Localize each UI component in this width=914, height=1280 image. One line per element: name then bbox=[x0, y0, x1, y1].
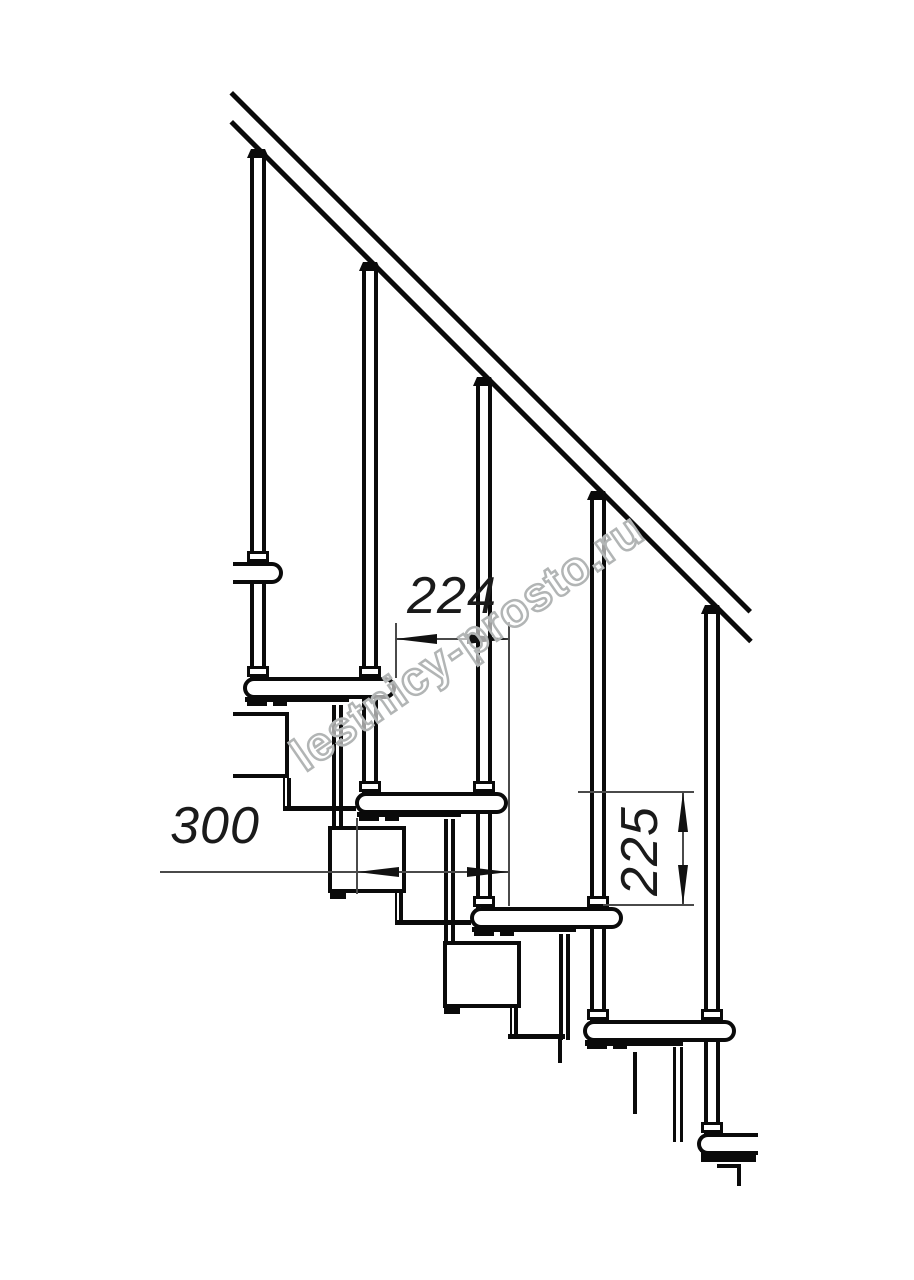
baluster-base-collar bbox=[473, 781, 495, 792]
module-link-line bbox=[395, 920, 471, 925]
tread-4 bbox=[583, 1020, 736, 1042]
module-duct-line bbox=[559, 934, 563, 1040]
module-duct-line bbox=[680, 1047, 683, 1142]
rail-connector-1 bbox=[247, 149, 269, 158]
module-duct-line bbox=[566, 934, 570, 1040]
stringer-module-2 bbox=[328, 826, 406, 893]
module-foot-tab bbox=[330, 893, 346, 899]
dimension-label-step-rise: 225 bbox=[614, 794, 666, 908]
module-link-line bbox=[283, 806, 356, 811]
rail-connector-2 bbox=[359, 262, 381, 271]
baluster-base-collar bbox=[359, 781, 381, 792]
baluster-base-collar bbox=[473, 896, 495, 907]
dimension-line bbox=[160, 871, 510, 873]
stair-drawing-canvas: 224 300 225 lestnicy-prosto.ru bbox=[0, 0, 914, 1280]
module-edge-cut-line bbox=[633, 1052, 637, 1114]
baluster-1 bbox=[250, 158, 266, 679]
arrowhead-left-icon bbox=[357, 867, 399, 877]
extension-line bbox=[356, 818, 358, 894]
module-foot-tab bbox=[444, 1008, 460, 1014]
stringer-module-3 bbox=[443, 941, 521, 1008]
module-link-line bbox=[558, 1039, 562, 1063]
module-link-line bbox=[514, 1008, 518, 1037]
arrowhead-down-icon bbox=[678, 865, 688, 905]
watermark: lestnicy-prosto.ru bbox=[251, 483, 683, 802]
arrowhead-up-icon bbox=[678, 792, 688, 832]
module-link-line bbox=[737, 1164, 741, 1186]
baluster-base-collar bbox=[247, 666, 269, 677]
extension-line bbox=[508, 622, 510, 906]
extension-line bbox=[578, 791, 694, 793]
tread-0-cut bbox=[233, 562, 283, 584]
module-link-line bbox=[399, 893, 403, 922]
baluster-base-collar bbox=[701, 1122, 723, 1133]
tread-2 bbox=[355, 792, 508, 814]
module-link-line bbox=[508, 1034, 565, 1039]
tread-5-cut bbox=[697, 1133, 758, 1155]
module-duct-line bbox=[673, 1047, 676, 1142]
baluster-5 bbox=[704, 613, 720, 1135]
baluster-base-collar bbox=[247, 551, 269, 562]
baluster-base-collar bbox=[701, 1009, 723, 1020]
dimension-label-tread-depth: 300 bbox=[155, 800, 275, 852]
arrowhead-right-icon bbox=[467, 867, 509, 877]
baluster-base-collar bbox=[587, 1009, 609, 1020]
module-link-line bbox=[510, 1008, 512, 1037]
module-link-line bbox=[395, 893, 397, 922]
tread-3 bbox=[470, 907, 623, 929]
